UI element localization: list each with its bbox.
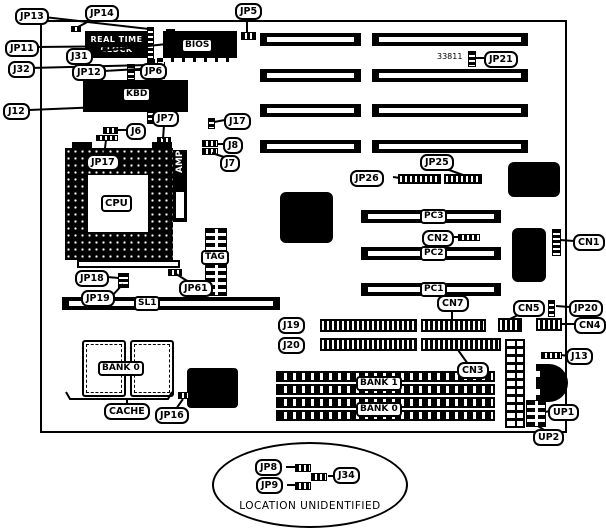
sl1-label: SL1 — [134, 296, 160, 311]
label-jp61: JP61 — [179, 280, 213, 297]
bank1-label: BANK 1 — [356, 376, 402, 391]
cpu-label: CPU — [101, 195, 132, 212]
label-jp8: JP8 — [255, 459, 282, 476]
pc3-label: PC3 — [420, 209, 447, 224]
label-jp9: JP9 — [256, 477, 283, 494]
label-j7: J7 — [220, 155, 240, 172]
label-jp12: JP12 — [72, 64, 106, 81]
label-jp26: JP26 — [350, 170, 384, 187]
location-note-text: LOCATION UNIDENTIFIED — [212, 500, 408, 512]
label-jp13: JP13 — [15, 8, 49, 25]
label-up1: UP1 — [548, 404, 579, 421]
label-jp20: JP20 — [569, 300, 603, 317]
label-jp7: JP7 — [152, 110, 179, 127]
label-jp21: JP21 — [484, 51, 518, 68]
label-cn1: CN1 — [573, 234, 605, 251]
label-cn3: CN3 — [457, 362, 489, 379]
bank0-label: BANK 0 — [356, 402, 402, 417]
label-j34: J34 — [333, 467, 360, 484]
label-jp5: JP5 — [235, 3, 262, 20]
label-cache: CACHE — [104, 403, 150, 420]
label-up2: UP2 — [533, 429, 564, 446]
label-cn4: CN4 — [574, 317, 606, 334]
pc2-label: PC2 — [420, 246, 447, 261]
label-jp14: JP14 — [85, 5, 119, 22]
label-j17: J17 — [224, 113, 251, 130]
label-j12: J12 — [3, 103, 30, 120]
bios-chip-label: BIOS — [181, 38, 213, 53]
label-j19: J19 — [278, 317, 305, 334]
motherboard-diagram: REAL TIME CLOCK BIOS KBD 33811 CPU AMP T… — [0, 0, 606, 530]
cache-bank0-label: BANK 0 — [98, 361, 144, 376]
label-j8: J8 — [223, 137, 243, 154]
label-j31: J31 — [66, 48, 93, 65]
label-j32: J32 — [8, 61, 35, 78]
label-cn7: CN7 — [437, 295, 469, 312]
part-number-text: 33811 — [437, 52, 462, 61]
label-j13: J13 — [566, 348, 593, 365]
label-j6: J6 — [126, 123, 146, 140]
kbd-chip-label: KBD — [122, 87, 151, 102]
label-jp6: JP6 — [140, 63, 167, 80]
label-cn2: CN2 — [422, 230, 454, 247]
label-jp17: JP17 — [86, 154, 120, 171]
label-j20: J20 — [278, 337, 305, 354]
label-jp16: JP16 — [155, 407, 189, 424]
label-jp25: JP25 — [420, 154, 454, 171]
label-jp11: JP11 — [5, 40, 39, 57]
tag-label: TAG — [201, 250, 229, 265]
label-jp18: JP18 — [75, 270, 109, 287]
label-cn5: CN5 — [513, 300, 545, 317]
label-jp19: JP19 — [81, 290, 115, 307]
